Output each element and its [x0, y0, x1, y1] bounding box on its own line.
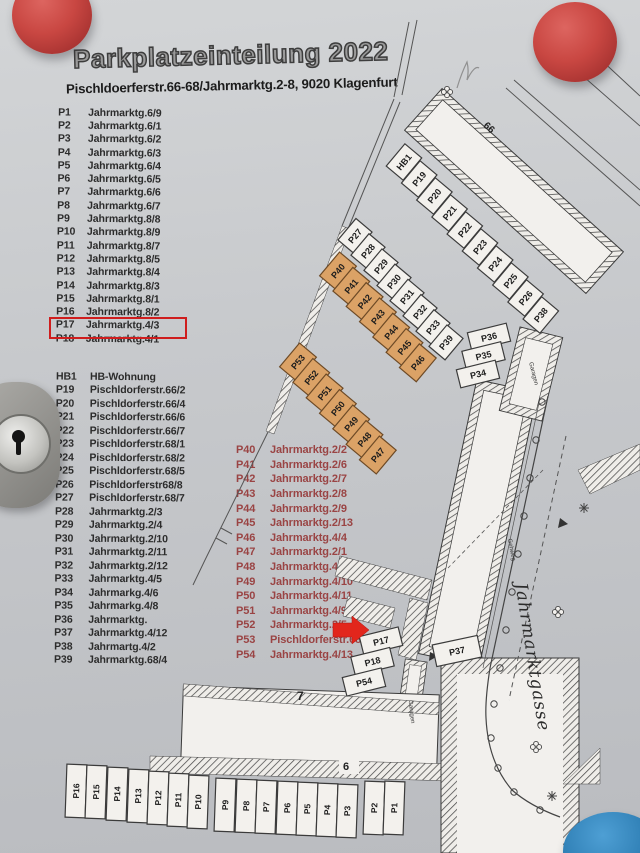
- map-space-P10: P10: [187, 775, 209, 829]
- map-space-P2: P2: [363, 781, 385, 835]
- building-7-label: 7: [297, 689, 304, 703]
- map-space-P12: P12: [147, 771, 169, 825]
- svg-text:P13: P13: [133, 788, 144, 804]
- map-space-P9: P9: [214, 778, 236, 832]
- svg-text:P9: P9: [220, 799, 230, 810]
- svg-text:P14: P14: [112, 786, 123, 802]
- map-space-P13: P13: [127, 769, 149, 823]
- svg-text:P7: P7: [261, 801, 271, 812]
- map-space-P8: P8: [235, 779, 257, 833]
- svg-text:P16: P16: [71, 783, 82, 799]
- map-space-P1: P1: [383, 781, 405, 835]
- map-space-P14: P14: [106, 767, 128, 821]
- svg-text:P6: P6: [282, 802, 292, 813]
- svg-text:P12: P12: [153, 790, 164, 806]
- map-space-P16: P16: [65, 764, 87, 818]
- map-space-P3: P3: [336, 784, 358, 838]
- svg-text:P1: P1: [389, 802, 399, 813]
- svg-text:P15: P15: [91, 784, 102, 800]
- map-space-P5: P5: [296, 782, 318, 836]
- svg-text:P5: P5: [302, 803, 312, 814]
- building-6-label: 6: [343, 761, 349, 773]
- map-space-P6: P6: [276, 781, 298, 835]
- site-map: HB1P19P20P21P22P23P24P25P26P38P27P28P29P…: [0, 0, 640, 853]
- svg-text:P8: P8: [241, 800, 251, 811]
- map-space-P15: P15: [85, 765, 107, 819]
- pen-scribble: [457, 62, 479, 88]
- svg-text:P11: P11: [173, 792, 184, 807]
- map-space-P7: P7: [255, 780, 277, 834]
- magnet-red-topright: [533, 2, 617, 82]
- gehweg-label: Gehweg: [506, 538, 516, 561]
- keyhole-slot-icon: [16, 438, 21, 455]
- svg-text:P4: P4: [322, 804, 332, 815]
- svg-text:P3: P3: [342, 805, 352, 816]
- svg-text:P2: P2: [369, 802, 379, 813]
- photo-stage: Parkplatzeinteilung 2022 Pischldoerferst…: [0, 0, 640, 853]
- map-space-P4: P4: [316, 783, 338, 837]
- map-buildings: [150, 20, 640, 853]
- map-space-P11: P11: [167, 773, 189, 827]
- svg-text:P10: P10: [193, 794, 204, 810]
- map-space-P54: P54: [342, 668, 385, 696]
